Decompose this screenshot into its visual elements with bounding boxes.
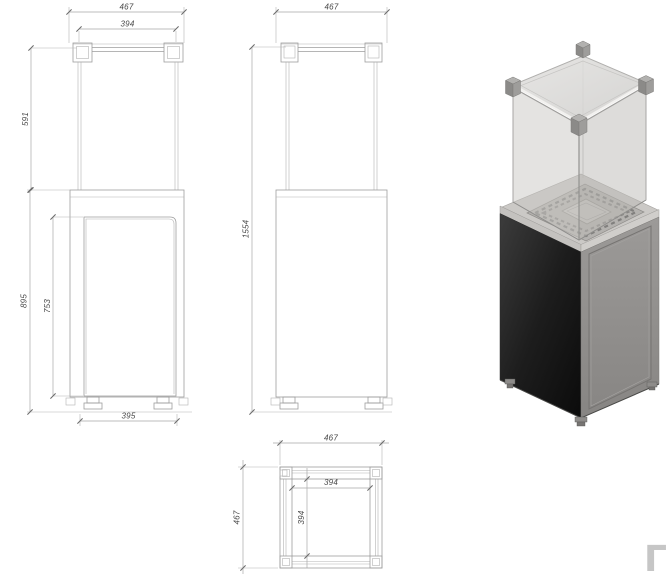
side-glass-section [286, 62, 377, 190]
dim-front-width-overall: 467 [120, 3, 134, 12]
base-face-right [581, 217, 659, 418]
front-feet [66, 397, 188, 409]
dim-front-width-glass: 394 [121, 20, 135, 29]
door-panel [84, 217, 176, 396]
technical-drawing-page: 467 394 591 895 753 395 [0, 0, 667, 576]
corner-bracket [164, 43, 183, 62]
dim-top-width-overall: 467 [324, 434, 338, 443]
foot [368, 397, 380, 403]
corner-post [280, 467, 292, 479]
corner-cap-rear [576, 41, 590, 58]
dim-top-depth-overall: 467 [233, 510, 242, 524]
side-dimensions: 467 1554 [242, 3, 390, 415]
corner-bracket [73, 43, 92, 62]
front-dimensions: 467 394 591 895 753 395 [20, 3, 187, 427]
side-top-cap [281, 43, 382, 62]
dim-front-base-width-bottom: 395 [122, 412, 136, 421]
top-view: 467 394 394 467 [233, 434, 390, 575]
dim-top-width-inner: 394 [324, 478, 338, 487]
gas-inlet-detail [280, 470, 287, 476]
side-view: 467 1554 [242, 3, 393, 415]
dim-side-width-overall: 467 [325, 3, 339, 12]
corner-cap-front [571, 114, 587, 136]
front-view: 467 394 591 895 753 395 [20, 3, 193, 427]
side-feet [271, 397, 392, 409]
front-top-cap [73, 43, 183, 62]
side-base-cabinet [250, 190, 392, 412]
foot [157, 397, 169, 403]
corner-post [370, 556, 382, 568]
front-glass-section [78, 62, 178, 190]
dim-front-glass-height: 591 [21, 112, 30, 126]
dim-front-base-height: 895 [20, 294, 29, 308]
corner-cap-left [506, 77, 521, 97]
corner-post [280, 556, 292, 568]
dim-front-door-height: 753 [43, 299, 52, 313]
foot [283, 397, 295, 403]
foot [87, 397, 99, 403]
corner-cap-right [639, 76, 654, 96]
dim-top-depth-inner: 394 [297, 510, 306, 524]
drawing-canvas: 467 394 591 895 753 395 [0, 0, 667, 576]
dim-side-total-height: 1554 [242, 219, 251, 238]
plan-dimensions: 467 394 394 467 [233, 434, 390, 575]
watermark: Γ [644, 539, 667, 576]
corner-post [370, 467, 382, 479]
isometric-render [500, 41, 659, 426]
